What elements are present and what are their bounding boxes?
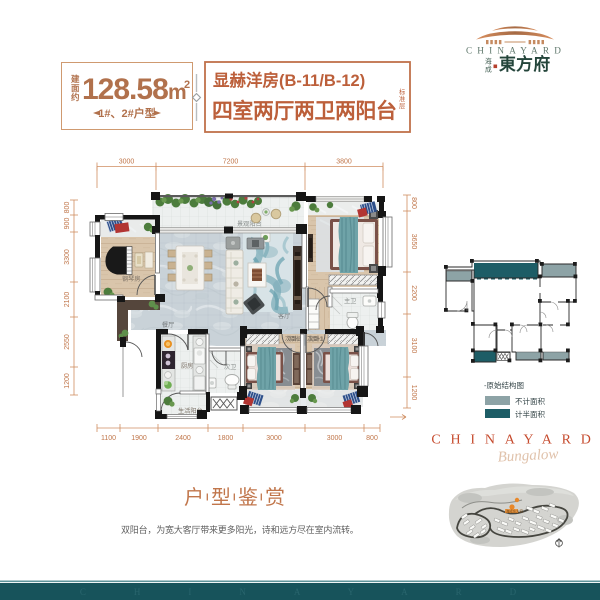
svg-text:主卫: 主卫: [344, 297, 356, 305]
svg-text:厨房: 厨房: [181, 362, 193, 370]
svg-text:800: 800: [410, 197, 417, 209]
svg-text:鉴: 鉴: [238, 486, 258, 509]
svg-text:1#、2#户型: 1#、2#户型: [98, 106, 155, 120]
svg-text:900: 900: [64, 218, 71, 230]
svg-text:7200: 7200: [223, 159, 239, 166]
svg-text:1800: 1800: [218, 435, 234, 442]
svg-text:四室两厅两卫两阳台: 四室两厅两卫两阳台: [212, 99, 396, 123]
svg-text:准: 准: [399, 94, 405, 103]
svg-text:3650: 3650: [410, 234, 417, 250]
svg-text:3100: 3100: [410, 338, 417, 354]
svg-text:1200: 1200: [64, 373, 71, 389]
svg-text:钢琴房: 钢琴房: [122, 275, 141, 283]
svg-text:2200: 2200: [410, 285, 417, 301]
svg-text:赏: 赏: [265, 486, 285, 509]
svg-text:CHINAYARD: CHINAYARD: [80, 587, 564, 597]
svg-text:Bungalow: Bungalow: [497, 446, 559, 465]
svg-text:型: 型: [211, 486, 231, 509]
svg-text:2100: 2100: [64, 292, 71, 308]
svg-text:显赫洋房(B-11/B-12): 显赫洋房(B-11/B-12): [213, 70, 365, 90]
svg-text:3300: 3300: [64, 249, 71, 265]
svg-text:128.58: 128.58: [82, 73, 168, 106]
svg-text:3800: 3800: [336, 159, 352, 166]
svg-text:3000: 3000: [327, 435, 343, 442]
svg-text:海成东方府: 海成东方府: [506, 508, 524, 513]
svg-text:次卧1: 次卧1: [307, 335, 323, 343]
svg-text:1900: 1900: [131, 435, 147, 442]
svg-text:東方府: 東方府: [499, 54, 551, 74]
svg-text:2550: 2550: [64, 334, 71, 350]
svg-text:次卧2: 次卧2: [285, 335, 301, 343]
svg-text:1200: 1200: [410, 385, 417, 401]
svg-text:标: 标: [399, 87, 406, 96]
svg-text:海: 海: [485, 57, 492, 66]
svg-text:CHINAYARD: CHINAYARD: [466, 46, 566, 56]
svg-text:-原始结构图: -原始结构图: [484, 380, 524, 390]
svg-text:800: 800: [64, 202, 71, 214]
svg-text:1100: 1100: [101, 435, 116, 442]
svg-text:不计面积: 不计面积: [515, 396, 545, 406]
svg-text:计半面积: 计半面积: [515, 409, 545, 419]
svg-text:餐厅: 餐厅: [162, 321, 174, 329]
svg-text:3000: 3000: [266, 435, 282, 442]
svg-text:层: 层: [399, 102, 405, 110]
svg-text:2: 2: [184, 79, 190, 91]
svg-text:800: 800: [366, 435, 378, 442]
svg-text:双阳台，为宽大客厅带来更多阳光，诗和远方尽在室内流转。: 双阳台，为宽大客厅带来更多阳光，诗和远方尽在室内流转。: [121, 524, 359, 535]
svg-text:成: 成: [485, 65, 492, 74]
svg-text:户: 户: [184, 486, 204, 509]
svg-text:2400: 2400: [175, 435, 191, 442]
svg-text:约: 约: [71, 92, 80, 102]
svg-text:CHINAYARD: CHINAYARD: [431, 433, 600, 448]
svg-text:3000: 3000: [119, 159, 135, 166]
